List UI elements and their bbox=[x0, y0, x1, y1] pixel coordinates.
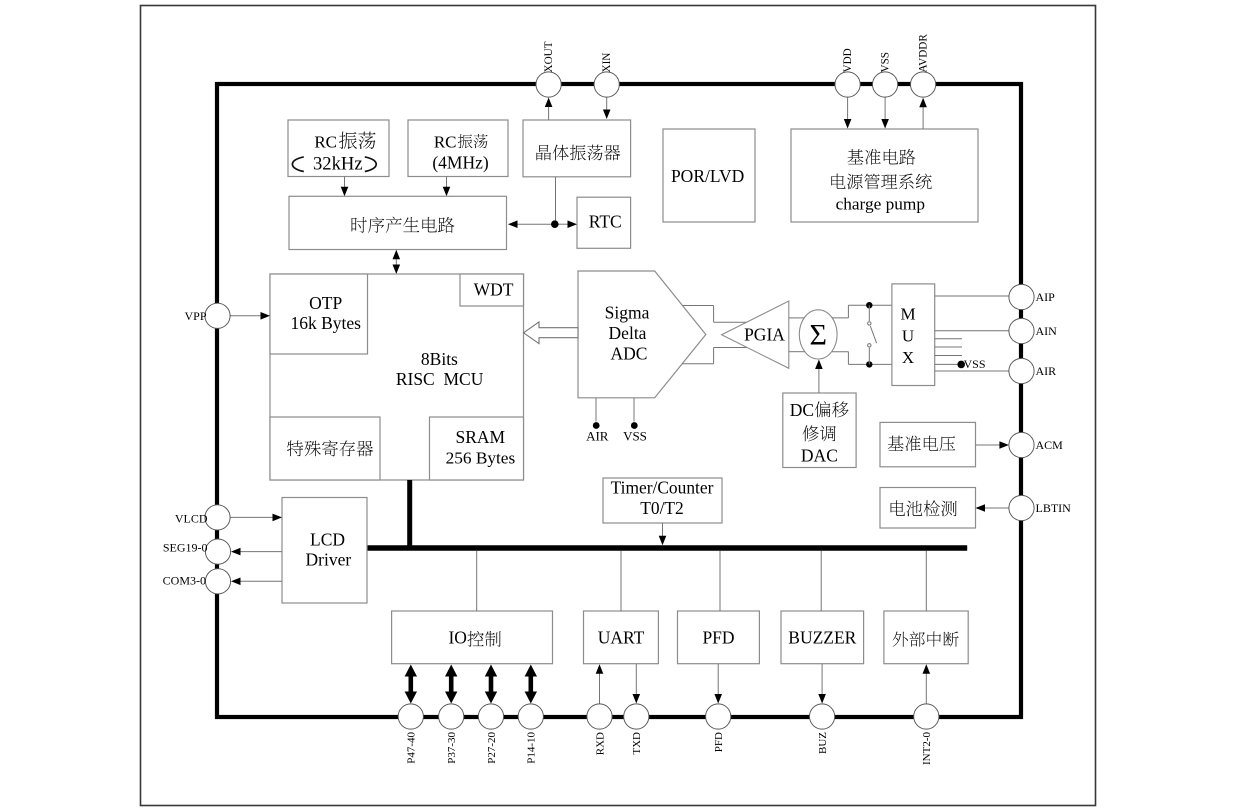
svg-text:UART: UART bbox=[598, 628, 645, 648]
svg-text:POR/LVD: POR/LVD bbox=[671, 166, 744, 186]
svg-text:charge pump: charge pump bbox=[836, 195, 925, 214]
svg-text:P14-10: P14-10 bbox=[526, 732, 538, 764]
svg-text:RC: RC bbox=[314, 132, 337, 151]
svg-text:LCD: LCD bbox=[310, 529, 345, 549]
svg-text:WDT: WDT bbox=[474, 280, 514, 300]
svg-text:16k Bytes: 16k Bytes bbox=[290, 313, 361, 333]
svg-text:LBTIN: LBTIN bbox=[1036, 501, 1072, 515]
svg-text:Σ: Σ bbox=[809, 319, 826, 352]
svg-text:IO: IO bbox=[448, 628, 466, 648]
svg-text:RTC: RTC bbox=[589, 212, 622, 232]
svg-text:RISC MCU: RISC MCU bbox=[396, 369, 484, 389]
svg-text:P37-30: P37-30 bbox=[446, 732, 458, 764]
svg-text:AIR: AIR bbox=[1036, 364, 1057, 378]
svg-text:COM3-0: COM3-0 bbox=[163, 574, 206, 588]
svg-text:256 Bytes: 256 Bytes bbox=[446, 449, 516, 468]
svg-text:(4MHz): (4MHz) bbox=[432, 153, 489, 173]
svg-text:Driver: Driver bbox=[306, 549, 352, 569]
svg-text:VSS: VSS bbox=[964, 357, 986, 371]
svg-text:PGIA: PGIA bbox=[744, 325, 785, 345]
svg-text:Sigma: Sigma bbox=[605, 303, 650, 323]
svg-text:AVDDR: AVDDR bbox=[918, 34, 930, 73]
svg-text:SRAM: SRAM bbox=[455, 427, 505, 447]
svg-text:VDD: VDD bbox=[842, 48, 854, 72]
svg-text:PFD: PFD bbox=[702, 628, 734, 648]
svg-text:T0/T2: T0/T2 bbox=[640, 498, 683, 518]
svg-text:BUZZER: BUZZER bbox=[788, 628, 856, 648]
svg-text:AIP: AIP bbox=[1036, 290, 1056, 304]
svg-text:VSS: VSS bbox=[623, 429, 647, 444]
svg-text:U: U bbox=[902, 327, 914, 346]
svg-text:P47-40: P47-40 bbox=[406, 732, 418, 764]
svg-text:P27-20: P27-20 bbox=[486, 732, 498, 764]
svg-text:OTP: OTP bbox=[309, 293, 342, 313]
svg-text:INT2-0: INT2-0 bbox=[921, 732, 933, 765]
svg-text:VPP: VPP bbox=[184, 309, 206, 323]
svg-text:DC: DC bbox=[790, 400, 814, 420]
svg-text:X: X bbox=[902, 348, 914, 367]
svg-text:AIN: AIN bbox=[1036, 324, 1058, 338]
svg-text:PFD: PFD bbox=[713, 732, 725, 752]
svg-text:VSS: VSS bbox=[880, 52, 892, 73]
svg-text:BUZ: BUZ bbox=[817, 732, 829, 754]
svg-text:XOUT: XOUT bbox=[543, 41, 555, 72]
svg-text:SEG19-0: SEG19-0 bbox=[163, 541, 208, 555]
svg-text:ADC: ADC bbox=[611, 344, 648, 364]
svg-text:RXD: RXD bbox=[594, 732, 606, 755]
svg-text:8Bits: 8Bits bbox=[421, 349, 458, 369]
svg-text:ACM: ACM bbox=[1036, 438, 1064, 452]
svg-text:DAC: DAC bbox=[801, 446, 838, 466]
svg-text:32kHz: 32kHz bbox=[313, 154, 363, 175]
svg-text:M: M bbox=[900, 304, 915, 323]
svg-text:AIR: AIR bbox=[586, 429, 609, 444]
svg-text:Delta: Delta bbox=[609, 323, 647, 343]
svg-text:TXD: TXD bbox=[631, 732, 643, 755]
svg-text:XIN: XIN bbox=[601, 53, 613, 73]
svg-text:Timer/Counter: Timer/Counter bbox=[611, 477, 714, 497]
svg-text:VLCD: VLCD bbox=[175, 512, 208, 526]
svg-text:RC: RC bbox=[434, 132, 457, 151]
